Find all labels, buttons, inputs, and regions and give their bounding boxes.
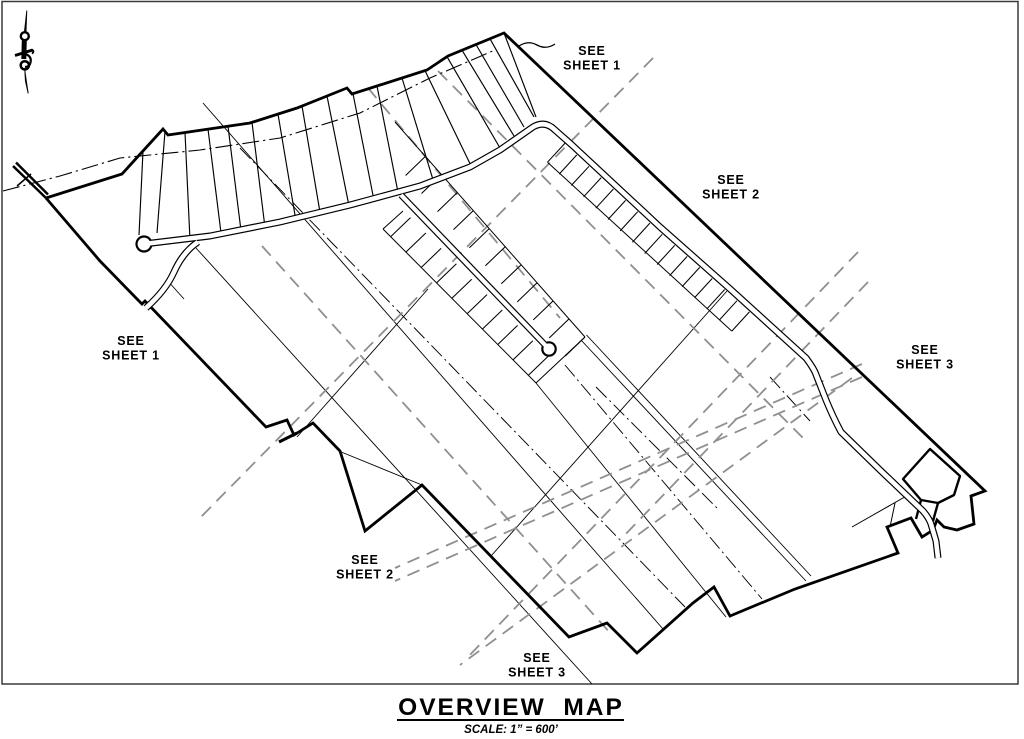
svg-text:SEE: SEE xyxy=(578,44,605,58)
svg-text:OVERVIEW MAP: OVERVIEW MAP xyxy=(398,694,624,721)
svg-text:SEE: SEE xyxy=(717,173,744,187)
svg-text:SHEET 3: SHEET 3 xyxy=(508,666,566,680)
svg-text:SEE: SEE xyxy=(911,343,938,357)
svg-text:SHEET 2: SHEET 2 xyxy=(336,568,394,582)
svg-text:SCALE: 1” = 600’: SCALE: 1” = 600’ xyxy=(464,724,558,736)
svg-text:SHEET 2: SHEET 2 xyxy=(702,188,760,202)
svg-text:SEE: SEE xyxy=(351,553,378,567)
svg-text:SHEET 1: SHEET 1 xyxy=(563,59,621,73)
svg-text:SHEET 1: SHEET 1 xyxy=(102,349,160,363)
svg-text:SEE: SEE xyxy=(523,651,550,665)
svg-text:SHEET 3: SHEET 3 xyxy=(896,358,954,372)
svg-text:SEE: SEE xyxy=(117,334,144,348)
